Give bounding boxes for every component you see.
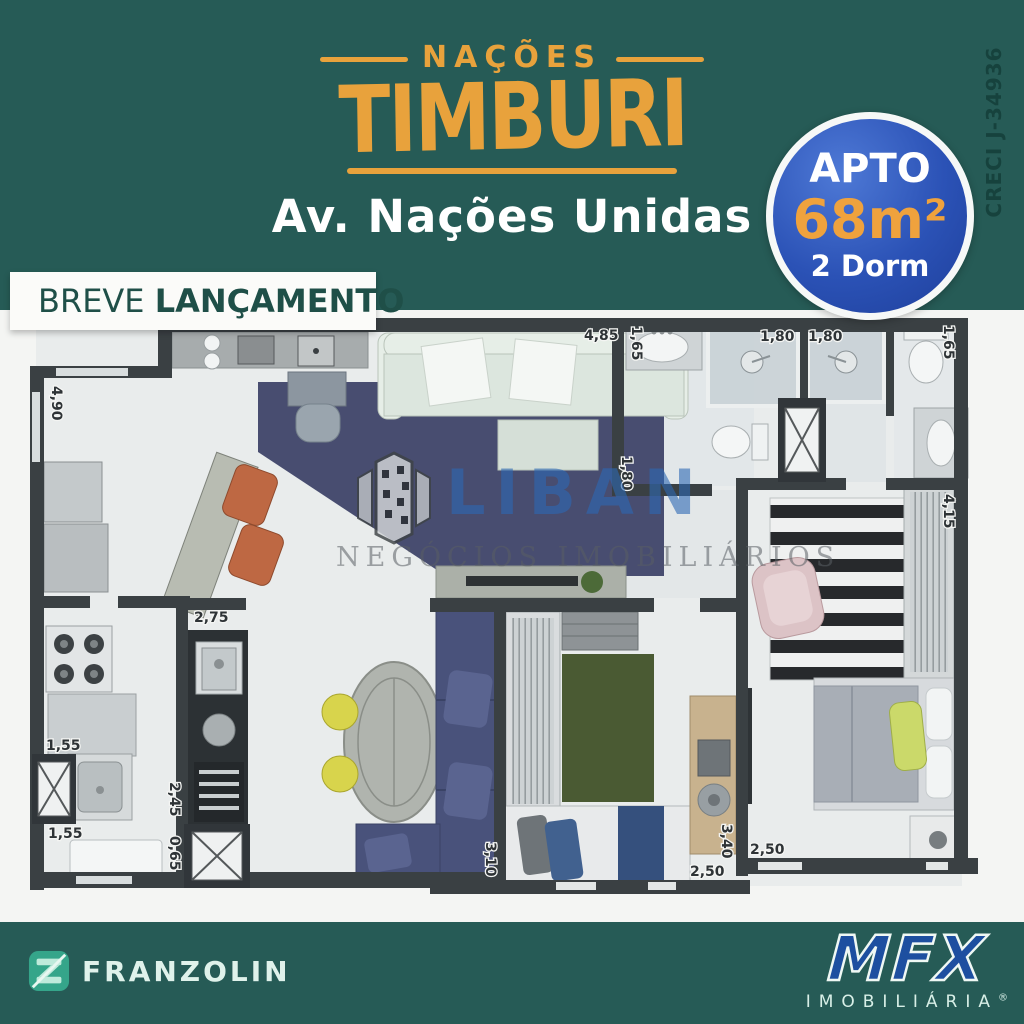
balcony-cabinet (44, 462, 102, 522)
bedroom2-rug (562, 654, 654, 802)
mfx-logo: MFX IMOBILIÁRIA® (806, 928, 1008, 1012)
dining-chair (322, 756, 358, 792)
dim-label: 2,45 (166, 782, 182, 817)
dim-label: 3,40 (718, 824, 734, 859)
dim-label: 1,65 (940, 325, 956, 360)
dim-label: 2,50 (750, 842, 785, 858)
toilet-bowl (712, 426, 750, 458)
plant-icon (581, 571, 603, 593)
dim-label: 0,65 (166, 836, 182, 871)
franzolin-name: FRANZOLIN (82, 955, 291, 988)
creci-number: CRECI J-34936 (982, 22, 1006, 242)
franzolin-logo: FRANZOLIN (28, 950, 291, 992)
mfx-subtitle: IMOBILIÁRIA® (806, 992, 1008, 1012)
bedroom2-shelf (562, 612, 638, 650)
launch-banner: BREVE LANÇAMENTO (10, 272, 376, 330)
balcony-clutter (238, 336, 274, 364)
bed-pillow (926, 746, 952, 798)
dim-label: 2,50 (690, 864, 725, 880)
island-basin (203, 714, 235, 746)
single-bed-blanket (618, 806, 664, 888)
mfx-name: MFX (804, 928, 1011, 990)
dim-label: 4,85 (584, 328, 619, 344)
brand-line-left (320, 57, 408, 62)
sofa-pillow (442, 669, 493, 729)
badge-apto-label: APTO (809, 148, 931, 190)
ottoman (498, 420, 598, 470)
sofa-cushion (509, 339, 577, 405)
desk-chair (296, 404, 340, 442)
accent-pillow (889, 701, 928, 772)
brand-underline (347, 168, 677, 174)
toilet-bowl (909, 341, 943, 383)
badge-area-value: 68m² (792, 190, 947, 249)
dim-label: 3,10 (482, 842, 498, 877)
stove (46, 626, 112, 692)
desk (288, 372, 346, 406)
floor-plan: 4,90 4,85 1,65 1,80 1,80 1,65 1,80 4,15 … (0, 310, 1024, 922)
launch-banner-bold: LANÇAMENTO (155, 282, 405, 320)
poster: NAÇÕES TIMBURI Av. Nações Unidas CRECI J… (0, 0, 1024, 1024)
dim-label: 1,55 (46, 738, 81, 754)
tv (466, 576, 578, 586)
balcony-sink-icon (204, 335, 220, 351)
bath-basin (927, 420, 955, 466)
dim-label: 4,90 (48, 386, 64, 421)
dining-chair (322, 694, 358, 730)
dim-label: 4,15 (940, 494, 956, 529)
dim-label: 1,65 (628, 326, 644, 361)
dim-label: 1,80 (760, 329, 795, 345)
toilet-tank (752, 424, 768, 460)
dim-label: 1,80 (618, 456, 634, 491)
registered-icon: ® (998, 992, 1008, 1003)
franzolin-logo-icon (28, 950, 70, 992)
footer: FRANZOLIN MFX IMOBILIÁRIA® (0, 922, 1024, 1024)
sofa-pillow (442, 761, 493, 821)
laptop-icon (698, 740, 730, 776)
dim-label: 1,80 (808, 329, 843, 345)
sofa-cushion (421, 338, 491, 406)
bed-pillow (926, 688, 952, 740)
badge-dorm-label: 2 Dorm (811, 249, 930, 284)
area-badge: APTO 68m² 2 Dorm (766, 112, 974, 320)
dim-label: 2,75 (194, 610, 229, 626)
dim-label: 1,55 (48, 826, 83, 842)
launch-banner-light: BREVE (38, 282, 155, 320)
floor-plan-area: 4,90 4,85 1,65 1,80 1,80 1,65 1,80 4,15 … (0, 310, 1024, 922)
